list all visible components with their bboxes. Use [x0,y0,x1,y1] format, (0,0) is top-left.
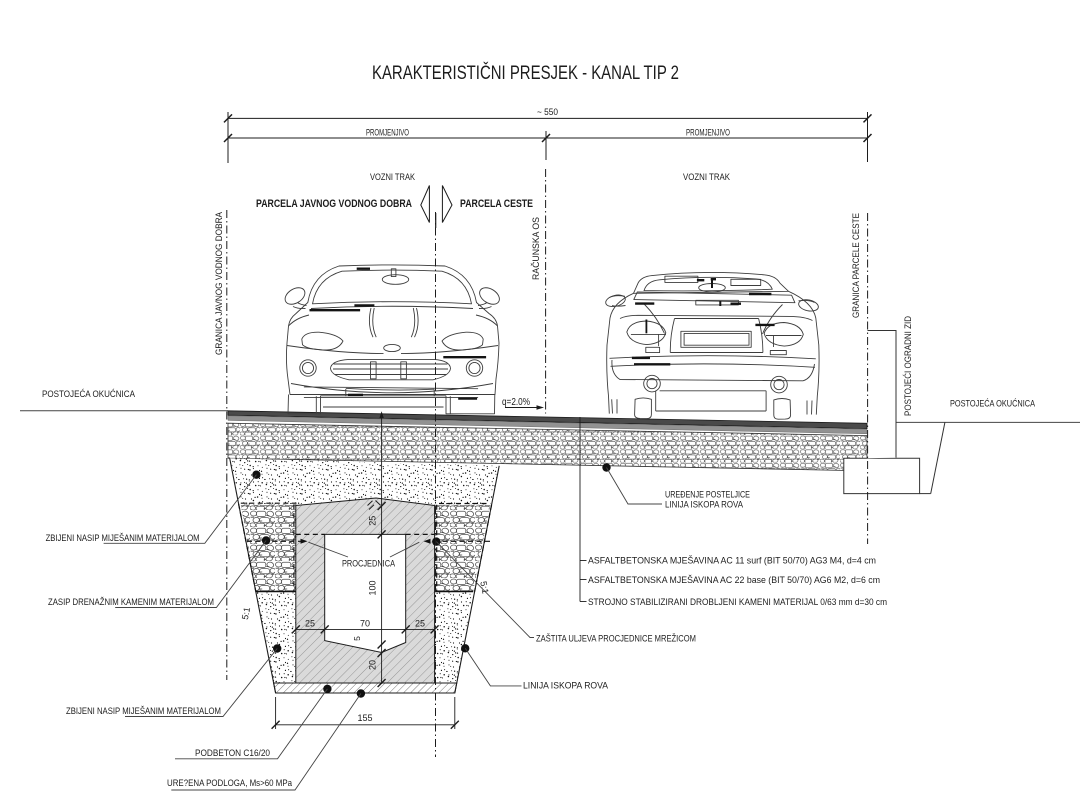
svg-text:25: 25 [305,619,315,629]
svg-text:POSTOJEĆA OKUĆNICA: POSTOJEĆA OKUĆNICA [42,389,136,400]
svg-text:STROJNO STABILIZIRANI DROBLJ: STROJNO STABILIZIRANI DROBLJENI KAMENI M… [588,597,887,608]
svg-text:PROMJENJIVO: PROMJENJIVO [366,128,409,138]
svg-text:PARCELA JAVNOG VODNOG DOBRA: PARCELA JAVNOG VODNOG DOBRA [256,198,412,210]
svg-text:70: 70 [360,619,370,629]
svg-text:POSTOJEĆA OKUĆNICA: POSTOJEĆA OKUĆNICA [950,399,1036,410]
svg-text:GRANICA PARCELE CESTE: GRANICA PARCELE CESTE [851,213,862,318]
svg-text:LINIJA ISKOPA ROVA: LINIJA ISKOPA ROVA [665,500,744,511]
svg-text:5: 5 [352,636,362,641]
svg-text:q=2.0%: q=2.0% [502,397,530,408]
svg-text:RAČUNSKA OS: RAČUNSKA OS [531,217,542,280]
svg-text:PROCJEDNICA: PROCJEDNICA [342,559,396,570]
svg-text:PROMJENJIVO: PROMJENJIVO [686,128,730,138]
svg-text:VOZNI TRAK: VOZNI TRAK [370,172,416,183]
svg-text:25: 25 [415,619,425,629]
svg-text:ZASIP DRENAŽNIM KAMENIM MAT: ZASIP DRENAŽNIM KAMENIM MATERIJALOM [48,597,214,608]
svg-text:PODBETON C16/20: PODBETON C16/20 [195,748,270,759]
svg-text:ZBIJENI NASIP MIJEŠANIM MAT: ZBIJENI NASIP MIJEŠANIM MATERIJALOM [46,533,200,544]
svg-text:ASFALTBETONSKA MJEŠAVINA AC: ASFALTBETONSKA MJEŠAVINA AC 22 base (BIT… [588,575,880,586]
svg-text:KARAKTERISTIČNI PRESJEK - KA: KARAKTERISTIČNI PRESJEK - KANAL TIP 2 [372,62,679,84]
svg-text:PARCELA CESTE: PARCELA CESTE [460,198,533,210]
svg-text:ZAŠTITA ULJEVA PROCJEDNICE: ZAŠTITA ULJEVA PROCJEDNICE MREŽICOM [536,634,696,645]
svg-text:POSTOJEĆI OGRADNI ZID: POSTOJEĆI OGRADNI ZID [903,316,914,416]
svg-text:GRANICA JAVNOG VODNOG DOBRA: GRANICA JAVNOG VODNOG DOBRA [214,211,225,355]
svg-text:LINIJA ISKOPA ROVA: LINIJA ISKOPA ROVA [523,681,609,692]
svg-text:~ 550: ~ 550 [537,107,558,118]
svg-text:5:1: 5:1 [478,580,490,594]
svg-text:155: 155 [357,713,372,723]
svg-text:5:1: 5:1 [240,606,252,620]
svg-text:ZBIJENI NASIP MIJEŠANIM MAT: ZBIJENI NASIP MIJEŠANIM MATERIJALOM [66,706,221,717]
svg-text:100: 100 [368,580,378,595]
svg-text:25: 25 [368,516,378,526]
svg-text:VOZNI TRAK: VOZNI TRAK [683,172,731,183]
svg-text:20: 20 [368,660,378,670]
svg-text:URE?ENA PODLOGA, Ms>60 MPa: URE?ENA PODLOGA, Ms>60 MPa [167,778,293,789]
svg-text:ASFALTBETONSKA MJEŠAVINA AC: ASFALTBETONSKA MJEŠAVINA AC 11 surf (BIT… [588,556,876,567]
